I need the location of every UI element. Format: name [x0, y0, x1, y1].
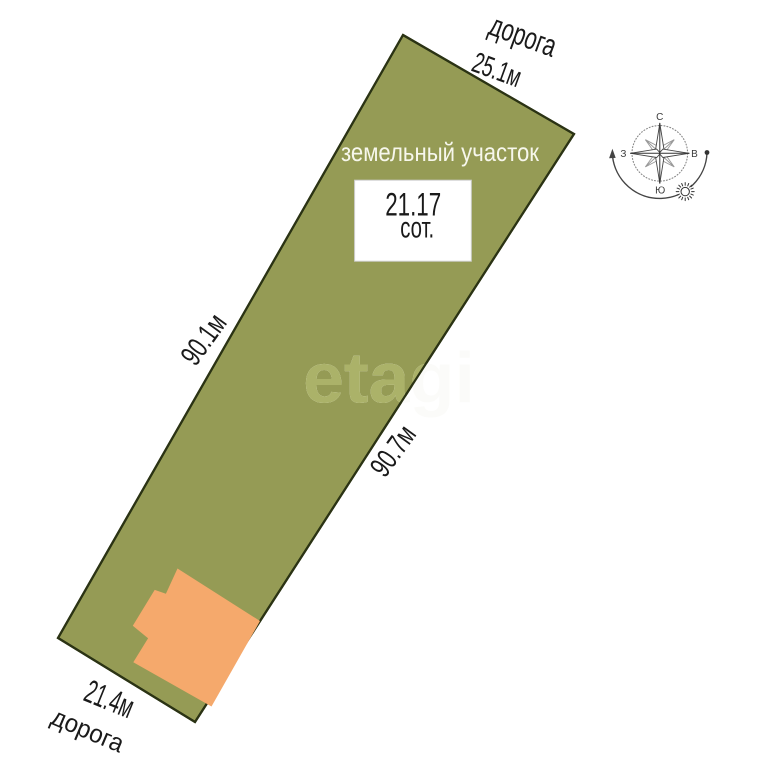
svg-text:сот.: сот.	[400, 212, 434, 245]
svg-text:С: С	[656, 112, 663, 123]
svg-text:В: В	[691, 149, 698, 160]
svg-text:З: З	[620, 149, 626, 160]
svg-text:земельный участок: земельный участок	[341, 137, 540, 167]
svg-text:Ю: Ю	[655, 185, 665, 196]
